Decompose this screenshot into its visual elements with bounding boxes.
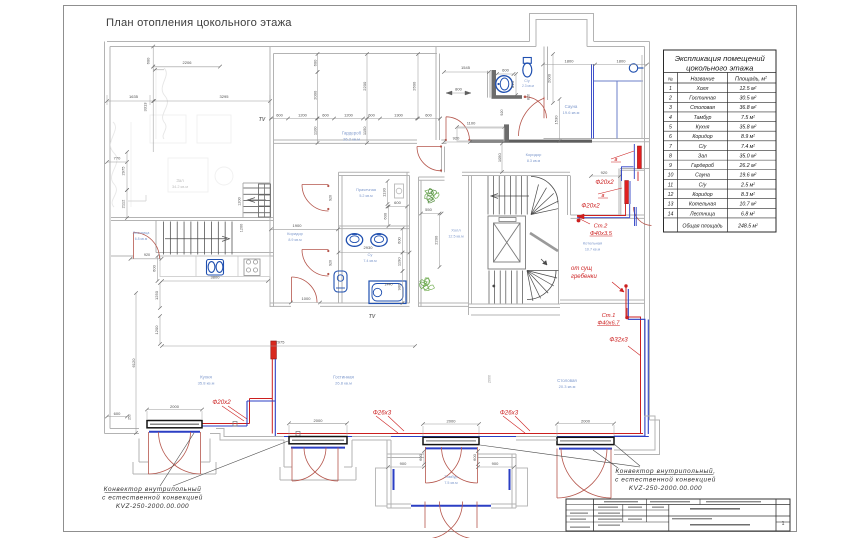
- svg-text:900: 900: [400, 461, 407, 466]
- svg-text:Ф20х2: Ф20х2: [595, 179, 614, 186]
- svg-text:Конвектор внутрипольный,: Конвектор внутрипольный,: [615, 467, 715, 475]
- svg-text:Су: Су: [368, 252, 373, 257]
- svg-text:600: 600: [383, 212, 388, 219]
- svg-text:10.7 кв.м: 10.7 кв.м: [585, 248, 601, 252]
- svg-text:26.2 кв.м: 26.2 кв.м: [343, 137, 360, 142]
- svg-text:2000: 2000: [581, 418, 591, 423]
- svg-text:Зал: Зал: [176, 178, 184, 183]
- svg-text:1800: 1800: [617, 58, 627, 63]
- svg-text:600: 600: [394, 200, 401, 205]
- svg-text:3313: 3313: [143, 102, 148, 112]
- svg-text:1800: 1800: [565, 58, 575, 63]
- svg-text:35.0 м2: 35.0 м2: [740, 153, 757, 160]
- svg-text:1150: 1150: [362, 126, 367, 135]
- svg-text:920: 920: [500, 109, 504, 115]
- svg-text:820: 820: [527, 94, 531, 100]
- svg-text:Ф26х3: Ф26х3: [500, 410, 519, 417]
- svg-text:13: 13: [668, 202, 674, 208]
- svg-text:Зал: Зал: [698, 153, 707, 159]
- svg-text:1100: 1100: [467, 121, 476, 126]
- svg-text:1200: 1200: [298, 112, 307, 117]
- svg-text:7.5 м2: 7.5 м2: [741, 114, 755, 121]
- svg-text:1530: 1530: [554, 115, 559, 125]
- svg-text:гребенки: гребенки: [571, 274, 597, 280]
- svg-text:Тамбур: Тамбур: [694, 115, 712, 121]
- svg-text:TV: TV: [369, 314, 376, 320]
- svg-text:600: 600: [312, 59, 317, 66]
- svg-text:10.7 м2: 10.7 м2: [740, 201, 757, 208]
- svg-text:2000: 2000: [314, 418, 324, 423]
- svg-text:Конвектор внутрипольный: Конвектор внутрипольный: [104, 485, 202, 493]
- svg-text:8: 8: [669, 153, 672, 159]
- svg-text:Общая площадь: Общая площадь: [682, 224, 722, 230]
- svg-text:Котельная: Котельная: [689, 202, 716, 208]
- svg-text:810: 810: [510, 80, 515, 87]
- svg-text:Гостинная: Гостинная: [689, 96, 716, 102]
- svg-text:600: 600: [397, 236, 402, 243]
- svg-text:6.8 м2: 6.8 м2: [741, 211, 755, 218]
- svg-text:1200: 1200: [344, 112, 353, 117]
- svg-text:26.2 м2: 26.2 м2: [739, 163, 757, 170]
- svg-text:600: 600: [276, 112, 283, 117]
- svg-text:Прачечная: Прачечная: [356, 187, 376, 192]
- svg-text:3295: 3295: [220, 94, 230, 99]
- svg-text:Холл: Холл: [696, 86, 709, 92]
- svg-text:600: 600: [425, 112, 432, 117]
- svg-text:9: 9: [669, 163, 672, 169]
- svg-text:920: 920: [144, 253, 150, 257]
- svg-text:Столовая: Столовая: [557, 378, 577, 383]
- svg-text:1: 1: [782, 521, 785, 527]
- svg-text:Кухня: Кухня: [696, 125, 710, 131]
- svg-text:920: 920: [453, 136, 460, 141]
- svg-text:2930: 2930: [364, 245, 374, 250]
- svg-text:4: 4: [669, 115, 672, 121]
- svg-text:30.5 м2: 30.5 м2: [740, 95, 757, 102]
- svg-text:600: 600: [152, 264, 157, 271]
- svg-text:KVZ-250-2000.00.000: KVZ-250-2000.00.000: [116, 503, 189, 510]
- svg-text:1130: 1130: [382, 187, 387, 196]
- svg-text:№: №: [668, 76, 673, 81]
- svg-text:Экспликация помещений: Экспликация помещений: [675, 54, 766, 63]
- svg-text:2112: 2112: [121, 199, 126, 208]
- svg-text:34.2 кв.м: 34.2 кв.м: [172, 185, 188, 189]
- svg-text:с естественной конвекцией: с естественной конвекцией: [615, 475, 716, 483]
- svg-text:Холл: Холл: [451, 228, 461, 233]
- svg-text:2200: 2200: [362, 81, 367, 91]
- svg-text:Коридор: Коридор: [692, 134, 712, 140]
- svg-text:770: 770: [114, 156, 121, 161]
- svg-text:Ст.2: Ст.2: [594, 224, 609, 230]
- svg-text:Лестница: Лестница: [689, 211, 715, 217]
- svg-text:2200: 2200: [434, 235, 439, 245]
- svg-text:14: 14: [668, 211, 674, 217]
- svg-text:1200: 1200: [154, 325, 159, 335]
- svg-text:2000: 2000: [312, 90, 317, 100]
- svg-text:7.4 кв.м: 7.4 кв.м: [363, 259, 377, 263]
- svg-text:12.5 м2: 12.5 м2: [740, 85, 757, 92]
- svg-text:35.8 м2: 35.8 м2: [740, 124, 757, 131]
- svg-text:Коридор: Коридор: [287, 231, 304, 236]
- svg-text:KVZ-250-2000.00.000: KVZ-250-2000.00.000: [629, 485, 702, 492]
- svg-text:1250: 1250: [154, 290, 159, 300]
- svg-text:Название: Название: [691, 76, 715, 82]
- svg-text:2000: 2000: [447, 419, 457, 424]
- svg-text:Площадь, м2: Площадь, м2: [735, 76, 767, 83]
- svg-text:1545: 1545: [461, 65, 471, 70]
- svg-text:1900: 1900: [293, 223, 303, 228]
- svg-text:8.9 м2: 8.9 м2: [741, 134, 755, 141]
- svg-text:Тамбур: Тамбур: [444, 474, 458, 479]
- svg-text:600: 600: [114, 411, 121, 416]
- svg-text:2975: 2975: [276, 340, 286, 345]
- svg-text:920: 920: [329, 195, 333, 201]
- svg-text:920: 920: [601, 170, 608, 175]
- svg-text:1440: 1440: [385, 283, 393, 287]
- svg-text:Гардероб: Гардероб: [691, 163, 715, 169]
- svg-text:900: 900: [397, 283, 402, 290]
- svg-text:TV: TV: [259, 117, 266, 123]
- svg-text:С/у: С/у: [524, 79, 530, 83]
- svg-text:8.3 м2: 8.3 м2: [741, 191, 755, 198]
- svg-text:600: 600: [368, 112, 375, 117]
- svg-text:2206: 2206: [183, 60, 193, 65]
- svg-text:35.8 кв.м: 35.8 кв.м: [198, 381, 215, 386]
- svg-text:920: 920: [329, 260, 333, 266]
- svg-text:900: 900: [492, 461, 499, 466]
- svg-text:План отопления цокольного этаж: План отопления цокольного этажа: [106, 17, 292, 29]
- svg-text:7.4 м2: 7.4 м2: [741, 143, 755, 150]
- svg-text:от сущ: от сущ: [571, 266, 592, 272]
- svg-text:10: 10: [668, 173, 674, 179]
- svg-text:3800: 3800: [211, 275, 221, 280]
- svg-text:2000: 2000: [488, 375, 492, 383]
- svg-text:Кухня: Кухня: [200, 375, 212, 380]
- svg-text:600: 600: [502, 68, 509, 73]
- svg-text:С/у: С/у: [699, 182, 707, 188]
- svg-text:1635: 1635: [129, 94, 139, 99]
- svg-text:2600: 2600: [412, 81, 417, 91]
- svg-text:Ф20х2: Ф20х2: [212, 399, 231, 406]
- svg-text:1300: 1300: [394, 112, 403, 117]
- svg-text:19.6 кв.м: 19.6 кв.м: [563, 110, 580, 115]
- svg-text:3: 3: [669, 105, 672, 111]
- svg-text:С/у: С/у: [699, 144, 707, 150]
- svg-text:Котельная: Котельная: [583, 241, 602, 246]
- svg-text:цокольного этажа: цокольного этажа: [686, 64, 754, 73]
- svg-text:1190: 1190: [397, 257, 402, 266]
- svg-text:1050: 1050: [497, 152, 502, 162]
- svg-text:8.9 кв.м: 8.9 кв.м: [288, 238, 302, 242]
- svg-text:800: 800: [455, 87, 462, 92]
- svg-text:1200: 1200: [237, 197, 241, 205]
- svg-text:Сауна: Сауна: [695, 173, 710, 179]
- svg-text:248.5 м2: 248.5 м2: [737, 223, 758, 230]
- svg-text:Гардероб: Гардероб: [342, 131, 362, 136]
- svg-text:Ф26х3: Ф26х3: [373, 410, 392, 417]
- svg-text:250: 250: [128, 414, 132, 420]
- svg-text:5: 5: [669, 125, 672, 131]
- svg-text:Столовая: Столовая: [690, 105, 715, 111]
- svg-text:600: 600: [322, 112, 329, 117]
- svg-text:2975: 2975: [121, 166, 126, 176]
- svg-text:26.8 кв.м: 26.8 кв.м: [335, 381, 352, 386]
- svg-text:2.5 м2: 2.5 м2: [740, 182, 755, 189]
- svg-text:Коридор: Коридор: [526, 152, 543, 157]
- svg-text:Лестница: Лестница: [133, 231, 151, 235]
- svg-text:2000: 2000: [547, 73, 552, 83]
- svg-text:1100: 1100: [312, 126, 317, 135]
- svg-text:6.8 кв.м: 6.8 кв.м: [135, 237, 148, 241]
- svg-text:600: 600: [472, 453, 477, 460]
- svg-text:7.5 кв.м: 7.5 кв.м: [444, 481, 458, 485]
- svg-text:6120: 6120: [131, 358, 136, 368]
- svg-text:Ст.1: Ст.1: [602, 313, 616, 319]
- svg-text:Сауна: Сауна: [565, 104, 578, 109]
- svg-text:5.2 кв.м: 5.2 кв.м: [359, 194, 373, 198]
- svg-text:6: 6: [669, 134, 672, 140]
- svg-text:12.5 кв.м: 12.5 кв.м: [448, 235, 464, 239]
- svg-text:2000: 2000: [170, 404, 180, 409]
- svg-text:1: 1: [669, 86, 672, 92]
- svg-text:Гостинная: Гостинная: [333, 375, 354, 380]
- svg-text:Ф20х2: Ф20х2: [581, 203, 600, 210]
- svg-text:1000: 1000: [302, 296, 312, 301]
- svg-text:8.3 кв.м: 8.3 кв.м: [527, 159, 541, 163]
- svg-text:20.3 кв.м: 20.3 кв.м: [559, 384, 576, 389]
- svg-text:с естественной конвекцией: с естественной конвекцией: [102, 494, 203, 502]
- svg-text:600: 600: [418, 453, 423, 460]
- svg-text:19.6 м2: 19.6 м2: [740, 172, 757, 179]
- svg-text:1200: 1200: [240, 224, 244, 232]
- svg-text:2.3 кв.м: 2.3 кв.м: [522, 84, 535, 88]
- svg-text:36.8 м2: 36.8 м2: [740, 105, 757, 112]
- svg-text:600: 600: [146, 57, 151, 64]
- svg-text:Коридор: Коридор: [692, 192, 712, 198]
- svg-text:550: 550: [425, 207, 432, 212]
- svg-text:11: 11: [668, 182, 673, 188]
- svg-text:2: 2: [668, 96, 672, 102]
- svg-text:Ф32х3: Ф32х3: [609, 337, 628, 344]
- svg-text:12: 12: [668, 192, 674, 198]
